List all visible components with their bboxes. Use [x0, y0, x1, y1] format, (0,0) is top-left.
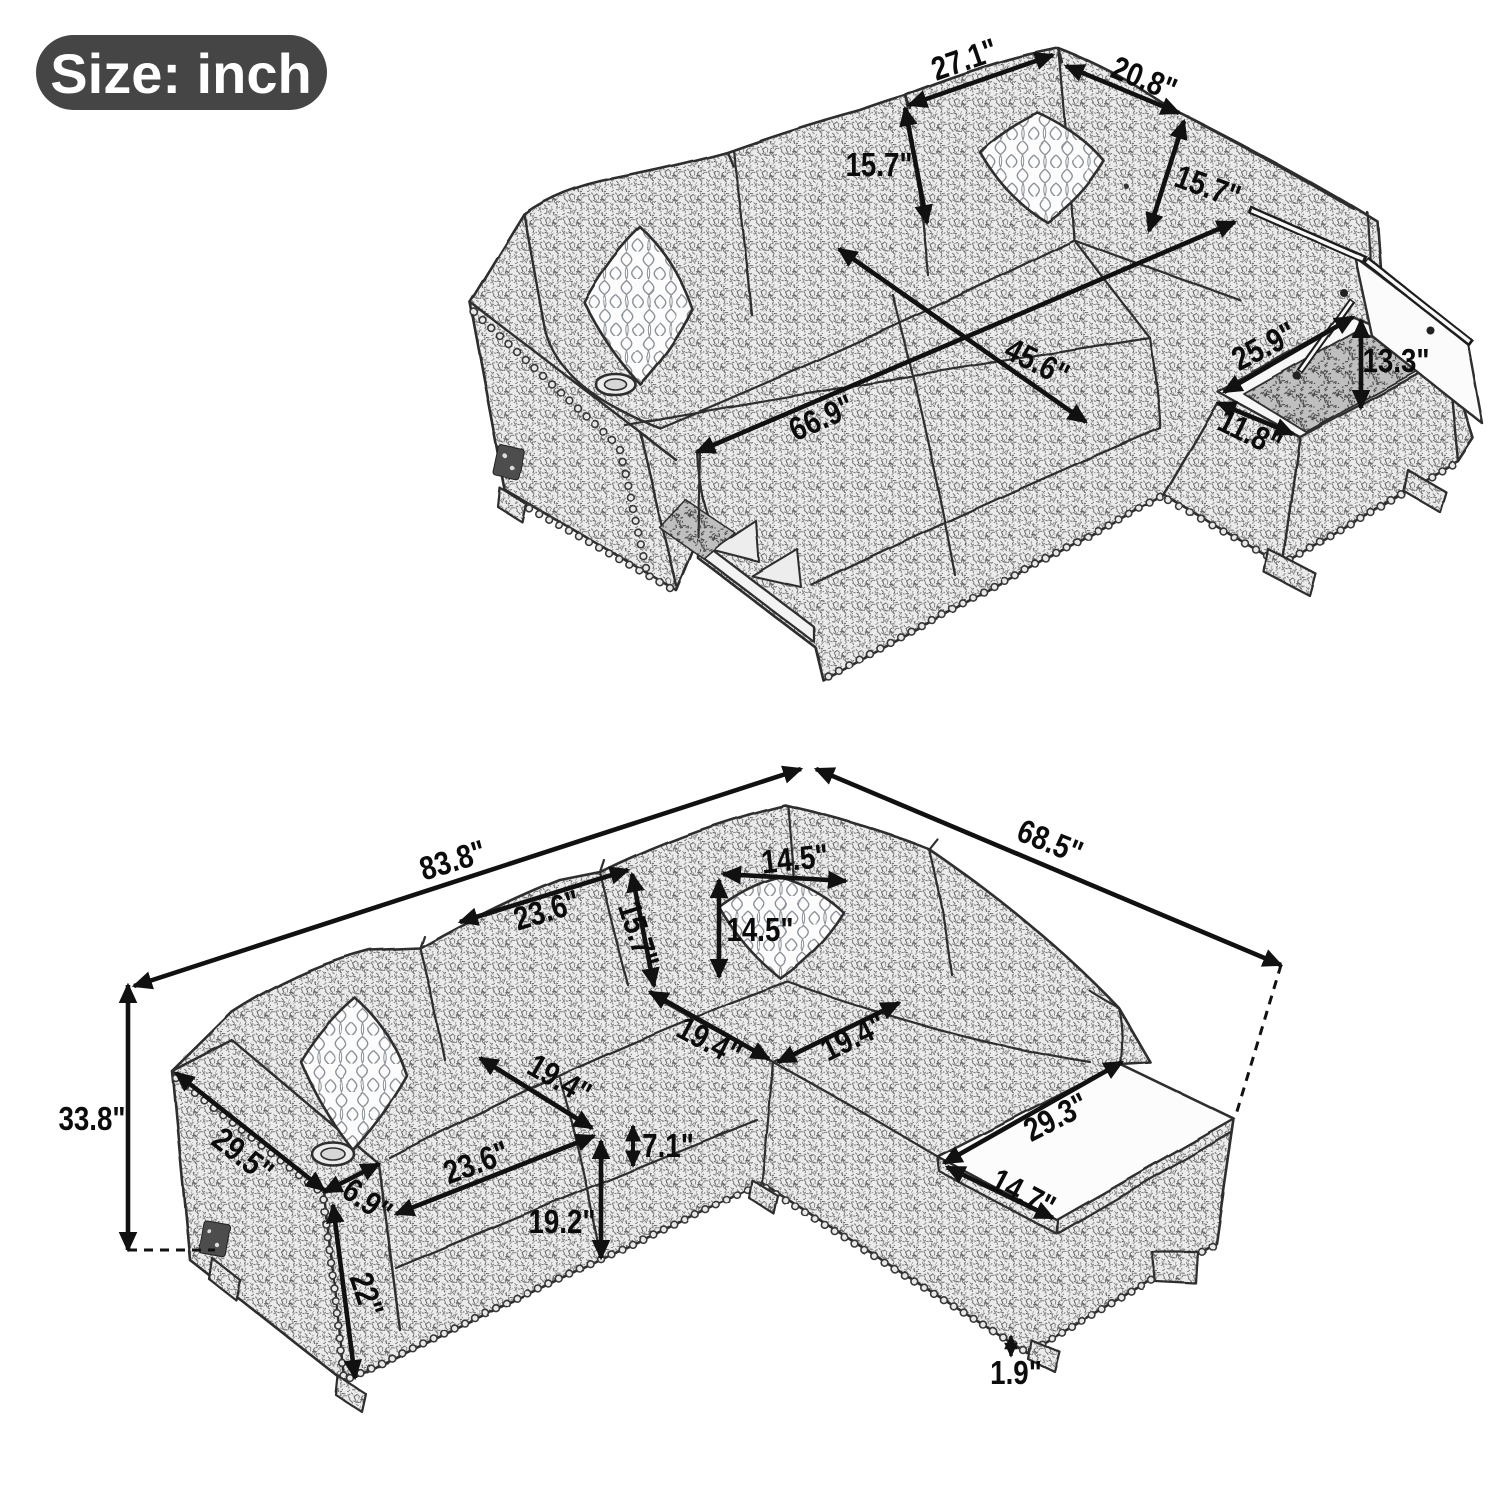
svg-text:7.1": 7.1": [642, 1128, 694, 1165]
svg-text:19.2": 19.2": [528, 1204, 595, 1241]
svg-text:13.3": 13.3": [1362, 343, 1429, 380]
svg-text:Size: inch: Size: inch: [50, 42, 311, 105]
svg-text:68.5": 68.5": [1012, 812, 1088, 871]
svg-text:83.8": 83.8": [415, 833, 490, 888]
svg-text:1.9": 1.9": [990, 1355, 1042, 1392]
svg-text:15.7": 15.7": [845, 147, 912, 184]
svg-text:33.8": 33.8": [58, 1101, 125, 1138]
svg-text:14.5": 14.5": [726, 912, 793, 949]
svg-text:14.5": 14.5": [760, 837, 831, 881]
